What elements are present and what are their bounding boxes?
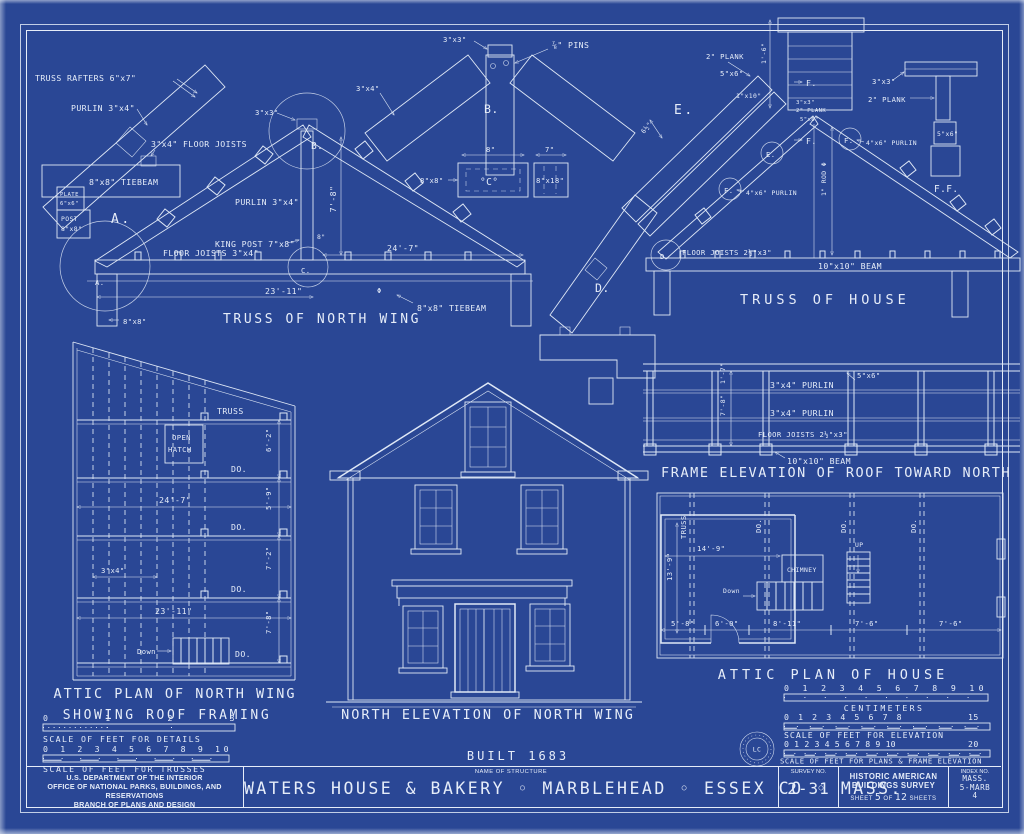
label-frame-joists: FLOOR JOISTS 2½"x3": [758, 430, 848, 439]
label-e-big: E.: [674, 103, 695, 118]
label-f-circle-1: F.: [724, 186, 733, 195]
label-apex-3x3: 3"x3": [796, 100, 815, 106]
dim-13-9: 13'-9": [665, 553, 674, 581]
label-frame-5x6: 5"x6": [857, 371, 881, 380]
sheet-label: SHEET: [850, 796, 872, 802]
label-tiebeam: 8"x8" TIEBEAM: [89, 177, 158, 187]
dim-14-9: 14'-9": [697, 544, 725, 553]
dim-attic-23-11: 23'-11": [155, 606, 192, 616]
title-block-structure-name: NAME OF STRUCTURE WATERS HOUSE & BAKERY …: [243, 767, 778, 807]
habs-line-2: BUILDINGS SURVEY: [839, 781, 948, 790]
label-hatch: HATCH: [168, 445, 192, 454]
label-chimney: CHIMNEY: [787, 566, 817, 574]
dim-frame-1-7: 1'-7": [719, 363, 727, 384]
dim-8in: 8": [486, 145, 495, 154]
north-elevation-drawing: NORTH ELEVATION OF NORTH WING: [318, 370, 650, 726]
scale-elev-numbers: 0 1 2 3 4 5 6 7 8: [784, 712, 902, 722]
label-5x6-e: 5"x6": [720, 69, 744, 78]
label-post-size: 8"x8": [61, 225, 82, 233]
label-truss-rafters: TRUSS RAFTERS 6"x7": [35, 73, 136, 83]
dim-3x4-spacing: 3"x4": [101, 566, 125, 575]
title-block-survey-no: SURVEY NO. 2-31: [778, 767, 838, 807]
attic-plan-north-wing-drawing: TRUSS DO. DO. DO. DO. OPEN HATCH 24'-7" …: [55, 330, 347, 734]
label-ff-3x3: 3"x3": [872, 77, 896, 86]
label-f-circle-2: F.: [844, 136, 853, 145]
label-floor-joists: FLOOR JOISTS 3"x4": [163, 248, 259, 258]
label-floor-joists-arrow: 3"x4" FLOOR JOISTS: [151, 139, 247, 149]
label-king-rod: 1" ROD Φ: [820, 162, 828, 196]
dim-23-11: 23'-11": [265, 286, 302, 296]
label-attic-house-truss: TRUSS: [679, 515, 688, 539]
dim-6-2: 6'-2": [264, 428, 273, 452]
caption-north-elevation: NORTH ELEVATION OF NORTH WING: [341, 707, 635, 723]
label-do-2: DO.: [231, 522, 247, 532]
label-sec-c: °C°: [480, 177, 498, 188]
dim-5-9: 5'-9": [264, 486, 273, 510]
label-b-rafter-size: 3"x4": [356, 84, 380, 93]
label-apex-5x6: 5"x6": [800, 117, 819, 123]
dim-rise-7-8: 7'-8": [328, 186, 338, 213]
attic-house-truss-lines: [690, 493, 924, 658]
label-purlin-mid: PURLIN 3"x4": [235, 197, 299, 207]
sheet-total: 12: [895, 792, 907, 803]
label-a-circle: A.: [95, 278, 104, 287]
scan-edge-bottom: [0, 828, 1024, 834]
label-attic-nw-truss: TRUSS: [217, 406, 244, 416]
agency-line-1: U.S. DEPARTMENT OF THE INTERIOR: [26, 773, 243, 782]
label-do-4: DO.: [235, 649, 251, 659]
truss-of-house-drawing: 2" PLANK 5"x6" E. 6½" 1"x10" E. F. 4"x6"…: [610, 12, 1024, 314]
label-post: POST: [61, 215, 78, 223]
scale-bars-right: 0 1 2 3 4 5 6 7 8 9 10 CENTIMETERS 0 1 2…: [778, 681, 1020, 765]
second-floor-window-left: [411, 485, 461, 554]
label-do-1: DO.: [231, 464, 247, 474]
house-facade: [326, 383, 648, 707]
dim-7-2: 7'-2": [264, 546, 273, 570]
dim-attic-24-7: 24'-7": [159, 495, 191, 505]
attic-house-chimney-stairs: [743, 552, 870, 610]
detail-ff: [893, 62, 977, 176]
label-post-bottom-size: 8"x8": [123, 317, 147, 326]
label-f-ref-2: F.: [806, 136, 817, 146]
attic-window: [461, 402, 515, 477]
second-floor-window-right: [517, 485, 567, 554]
door-entablature: [392, 580, 572, 606]
label-1x10: 1"x10": [736, 92, 762, 100]
label-attic-house-do-3: DO.: [909, 519, 918, 533]
label-a-big: A.: [111, 212, 132, 227]
built-date-label: BUILT 1683: [448, 749, 588, 763]
attic-nw-rafters: [93, 348, 205, 676]
title-block-agency: U.S. DEPARTMENT OF THE INTERIOR OFFICE O…: [26, 767, 243, 807]
label-plate-size: 6"x6": [60, 201, 79, 207]
caption-truss-of-house: TRUSS OF HOUSE: [740, 292, 910, 308]
scale-plans-caption: SCALE OF FEET FOR PLANS & FRAME ELEVATIO…: [780, 757, 982, 766]
scale-bars-left: 0 1 2 3 SCALE OF FEET FOR DETAILS 0 1 2 …: [35, 712, 253, 774]
label-plank-e: 2" PLANK: [706, 52, 744, 61]
label-sec-8x8: 8"x8": [420, 176, 444, 185]
scale-plans-numbers: 0 1 2 3 4 5 6 7 8 9 10: [784, 739, 896, 749]
svg-defs: [0, 0, 1, 1]
dim-kingpost-8: 8": [317, 233, 326, 241]
dim-8-11: 8'-11": [773, 619, 801, 628]
label-f-ref-1: F.: [806, 78, 817, 88]
scale-details-numbers: 0 1 2 3: [43, 713, 235, 723]
label-down-house: Down: [723, 587, 740, 595]
index-line-3: 4: [949, 792, 1001, 801]
label-plate: PLATE: [60, 192, 79, 198]
library-stamp: LC: [735, 727, 779, 771]
label-open: OPEN: [172, 433, 191, 442]
sheet-number: 5: [875, 792, 881, 803]
label-do-3: DO.: [231, 584, 247, 594]
label-apex-size: 3"x3": [255, 108, 279, 117]
agency-line-3: BRANCH OF PLANS AND DESIGN: [26, 800, 243, 809]
scan-edge-top: [0, 0, 1024, 4]
of-label: OF: [883, 796, 892, 802]
sheets-label: SHEETS: [910, 796, 937, 802]
frame-elevation-drawing: 5"x6" 3"x4" PURLIN 3"x4" PURLIN FLOOR JO…: [635, 358, 1022, 480]
dim-7-8-attic: 7'-8": [264, 610, 273, 634]
label-phi: Φ: [377, 286, 382, 295]
label-frame-purlin-2: 3"x4" PURLIN: [770, 408, 834, 418]
caption-attic-north-wing-1: ATTIC PLAN OF NORTH WING: [53, 686, 296, 702]
label-ff-5x6: 5"x6": [937, 130, 958, 138]
first-floor-window-right: [526, 604, 574, 671]
label-d: D.: [595, 281, 610, 295]
dim-6-0: 6'-0": [715, 619, 739, 628]
label-purlin-right: 4"x6" PURLIN: [866, 139, 917, 147]
label-b-circle: B.: [311, 141, 323, 152]
attic-plan-house-drawing: TRUSS DO. DO. DO. 14'-9" 13'-9" CHIMNEY …: [645, 483, 1022, 690]
label-apex-plank: 2" PLANK: [796, 108, 826, 114]
title-block-index-no: INDEX NO. MASS. 5-MARB 4: [948, 767, 1001, 807]
stamp-initials: LC: [753, 746, 762, 754]
label-pins: ⅞" PINS: [552, 40, 589, 50]
label-ff-plank: 2" PLANK: [868, 95, 906, 104]
house-truss-frame: [646, 116, 1020, 317]
title-block-habs: HISTORIC AMERICAN BUILDINGS SURVEY SHEET…: [838, 767, 948, 807]
dim-1-6: 1'-6": [760, 43, 768, 64]
label-tiebeam-2: 8"x8" TIEBEAM: [417, 303, 486, 313]
label-d-circle: D.: [660, 252, 669, 261]
habs-line-1: HISTORIC AMERICAN: [839, 772, 948, 781]
caption-frame-elevation: FRAME ELEVATION OF ROOF TOWARD NORTH: [661, 465, 1011, 481]
dim-24-7: 24'-7": [387, 243, 419, 253]
label-up: UP: [855, 541, 864, 549]
first-floor-window-left: [399, 606, 447, 673]
scale-trusses-numbers: 0 1 2 3 4 5 6 7 8 9 10: [43, 744, 229, 754]
label-b-apex-size: 3"x3": [443, 35, 467, 44]
scale-details-caption: SCALE OF FEET FOR DETAILS: [43, 734, 201, 744]
label-c-circle: C.: [301, 266, 310, 275]
caption-truss-north-wing: TRUSS OF NORTH WING: [223, 312, 421, 327]
label-frame-purlin-1: 3"x4" PURLIN: [770, 380, 834, 390]
dim-7-6-b: 7'-6": [939, 619, 963, 628]
name-of-structure-label: NAME OF STRUCTURE: [244, 769, 778, 775]
label-house-joists: FLOOR JOISTS 2½"x3": [682, 248, 772, 257]
label-attic-house-do-1: DO.: [754, 519, 763, 533]
label-purlin-left: 4"x6" PURLIN: [746, 189, 797, 197]
survey-no-label: SURVEY NO.: [779, 769, 838, 775]
title-block: U.S. DEPARTMENT OF THE INTERIOR OFFICE O…: [26, 766, 1001, 807]
label-b: B.: [484, 102, 499, 116]
label-e-circle: E.: [766, 150, 775, 159]
attic-nw-outline: [73, 342, 295, 680]
blueprint-sheet: TRUSS RAFTERS 6"x7" PURLIN 3"x4" 3"x4" F…: [0, 0, 1024, 834]
label-attic-house-do-2: DO.: [839, 519, 848, 533]
structure-name: WATERS HOUSE & BAKERY ◦ MARBLEHEAD ◦ ESS…: [244, 779, 778, 798]
scan-edge-left: [0, 0, 6, 834]
dim-frame-7-8: 7'-8": [719, 395, 727, 416]
scale-plans-end: 20: [968, 739, 979, 749]
label-10x10-beam: 10"x10" BEAM: [818, 261, 882, 271]
caption-ff: F.F.: [934, 184, 958, 195]
label-down-nw: Down: [137, 647, 156, 656]
agency-line-2: OFFICE OF NATIONAL PARKS, BUILDINGS, AND…: [26, 782, 243, 800]
label-purlin-top: PURLIN 3"x4": [71, 103, 135, 113]
scale-elev-end: 15: [968, 712, 979, 722]
survey-no-value: 2-31: [779, 779, 838, 798]
scale-cm-numbers: 0 1 2 3 4 5 6 7 8 9 10: [784, 683, 984, 693]
front-door: [451, 604, 519, 698]
dim-5-8: 5'-8": [671, 619, 695, 628]
sheet-info: SHEET 5 OF 12 SHEETS: [839, 792, 948, 803]
dim-7-6-a: 7'-6": [855, 619, 879, 628]
